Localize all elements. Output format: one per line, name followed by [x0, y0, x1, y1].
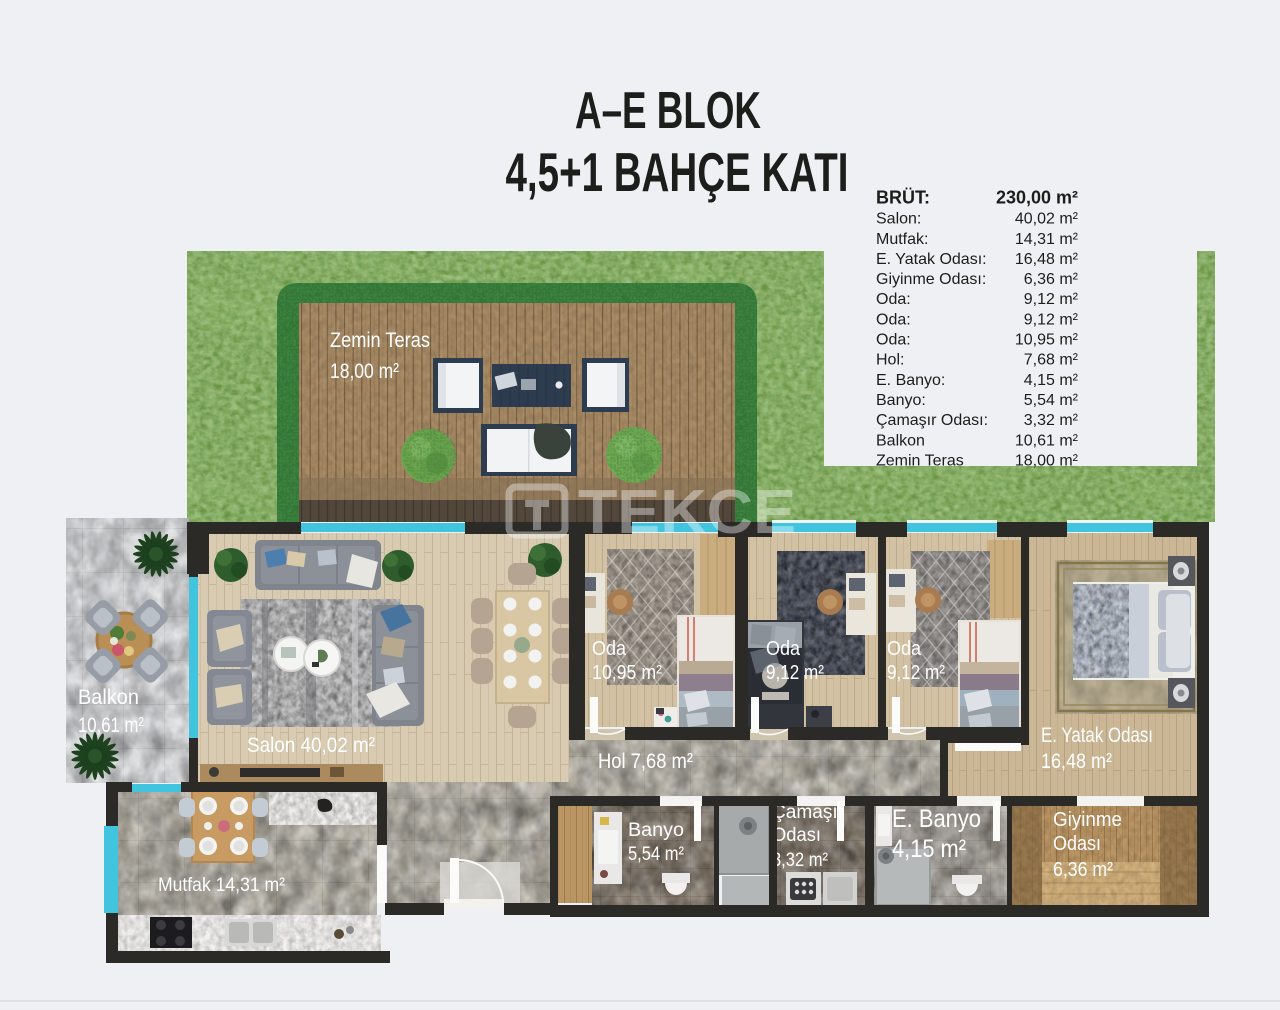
svg-text:Banyo:: Banyo:	[876, 392, 926, 409]
svg-text:Zemin Teras: Zemin Teras	[330, 329, 430, 352]
svg-text:Odası: Odası	[772, 825, 821, 846]
svg-text:5,54 m²: 5,54 m²	[628, 844, 684, 865]
svg-text:18,00 m²: 18,00 m²	[330, 360, 399, 383]
svg-text:6,36 m²: 6,36 m²	[1024, 271, 1079, 288]
svg-text:Çamaşır Odası:: Çamaşır Odası:	[876, 412, 988, 429]
svg-text:Oda:: Oda:	[876, 332, 911, 349]
svg-text:Mutfak 14,31 m²: Mutfak 14,31 m²	[158, 874, 285, 896]
svg-text:Balkon: Balkon	[876, 432, 925, 449]
svg-text:E. Banyo: E. Banyo	[892, 805, 981, 833]
svg-text:Hol:: Hol:	[876, 352, 904, 369]
svg-text:Hol 7,68 m²: Hol 7,68 m²	[598, 750, 693, 773]
svg-text:10,61 m²: 10,61 m²	[1015, 432, 1079, 449]
svg-text:A–E BLOK: A–E BLOK	[575, 82, 761, 140]
svg-text:Mutfak:: Mutfak:	[876, 231, 928, 248]
svg-text:Balkon: Balkon	[78, 686, 139, 709]
svg-text:3,32 m²: 3,32 m²	[772, 850, 828, 871]
svg-text:Giyinme Odası:: Giyinme Odası:	[876, 271, 986, 288]
svg-text:16,48 m²: 16,48 m²	[1041, 750, 1112, 773]
svg-text:16,48 m²: 16,48 m²	[1015, 251, 1079, 268]
svg-text:10,95 m²: 10,95 m²	[592, 661, 662, 684]
svg-text:BRÜT:: BRÜT:	[876, 188, 930, 208]
svg-text:Giyinme: Giyinme	[1053, 809, 1122, 831]
svg-text:E. Yatak Odası: E. Yatak Odası	[1041, 724, 1153, 747]
svg-text:Oda:: Oda:	[876, 311, 911, 328]
svg-text:Oda: Oda	[592, 637, 627, 660]
svg-text:Banyo: Banyo	[628, 820, 684, 841]
svg-text:6,36 m²: 6,36 m²	[1053, 859, 1113, 881]
svg-text:4,15 m²: 4,15 m²	[892, 835, 966, 863]
svg-text:7,68 m²: 7,68 m²	[1024, 352, 1079, 369]
svg-text:9,12 m²: 9,12 m²	[887, 661, 945, 684]
svg-text:E. Yatak Odası:: E. Yatak Odası:	[876, 251, 987, 268]
svg-text:Oda: Oda	[766, 637, 801, 660]
svg-text:9,12 m²: 9,12 m²	[766, 661, 824, 684]
svg-text:14,31 m²: 14,31 m²	[1015, 231, 1079, 248]
svg-text:18,00 m²: 18,00 m²	[1015, 452, 1079, 469]
svg-text:4,15 m²: 4,15 m²	[1024, 372, 1079, 389]
svg-text:Zemin Teras: Zemin Teras	[876, 452, 964, 469]
svg-text:Odası: Odası	[1053, 833, 1101, 855]
svg-text:E. Banyo:: E. Banyo:	[876, 372, 945, 389]
svg-text:40,02 m²: 40,02 m²	[1015, 211, 1079, 228]
svg-text:3,32 m²: 3,32 m²	[1024, 412, 1079, 429]
svg-text:9,12 m²: 9,12 m²	[1024, 291, 1079, 308]
svg-text:4,5+1 BAHÇE KATI: 4,5+1 BAHÇE KATI	[506, 141, 849, 203]
svg-text:230,00 m²: 230,00 m²	[996, 188, 1078, 208]
svg-text:9,12 m²: 9,12 m²	[1024, 311, 1079, 328]
svg-text:TEKCE: TEKCE	[578, 478, 796, 547]
svg-text:Oda: Oda	[887, 637, 922, 660]
svg-text:Oda:: Oda:	[876, 291, 911, 308]
svg-text:10,95 m²: 10,95 m²	[1015, 332, 1079, 349]
svg-text:5,54 m²: 5,54 m²	[1024, 392, 1079, 409]
svg-text:Salon 40,02 m²: Salon 40,02 m²	[247, 734, 375, 757]
svg-text:Salon:: Salon:	[876, 211, 921, 228]
svg-text:10,61 m²: 10,61 m²	[78, 714, 144, 737]
